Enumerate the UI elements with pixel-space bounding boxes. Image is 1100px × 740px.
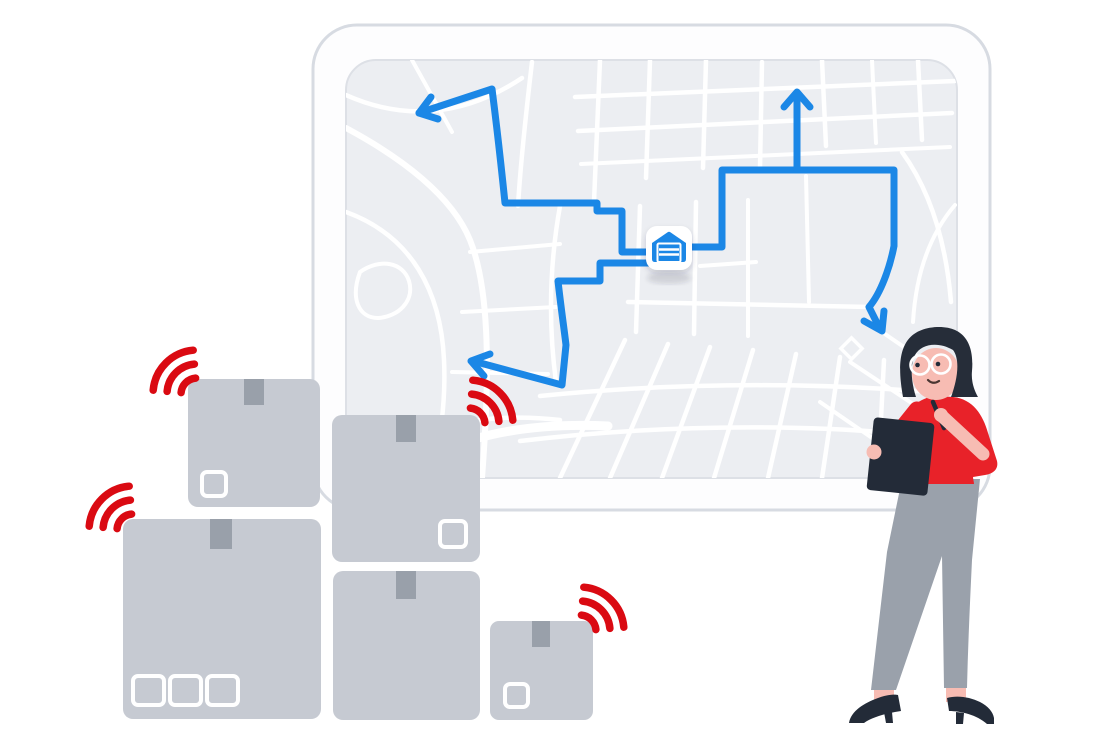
illustration-stage: [0, 0, 1100, 740]
shoes: [849, 695, 994, 724]
box-tape: [532, 621, 550, 647]
hand-left: [867, 445, 882, 460]
eye-left: [915, 363, 920, 368]
box-tape: [396, 571, 416, 599]
box-tape: [396, 415, 416, 442]
warehouse-marker: [646, 226, 692, 284]
hand-right: [934, 408, 948, 422]
box-tape: [244, 379, 264, 405]
parcel-box-small-lower: [490, 621, 593, 720]
parcel-box-large: [123, 519, 321, 719]
delivery-logistics-illustration: [0, 0, 1100, 740]
warehouse-marker-shadow: [647, 272, 691, 284]
parcel-box-mid-right: [332, 415, 480, 562]
eye-right: [936, 362, 941, 367]
signal-icon: [89, 486, 131, 528]
box-tape: [210, 519, 232, 549]
parcel-box-bottom-mid: [333, 571, 480, 720]
parcel-box-small-upper: [188, 379, 320, 507]
